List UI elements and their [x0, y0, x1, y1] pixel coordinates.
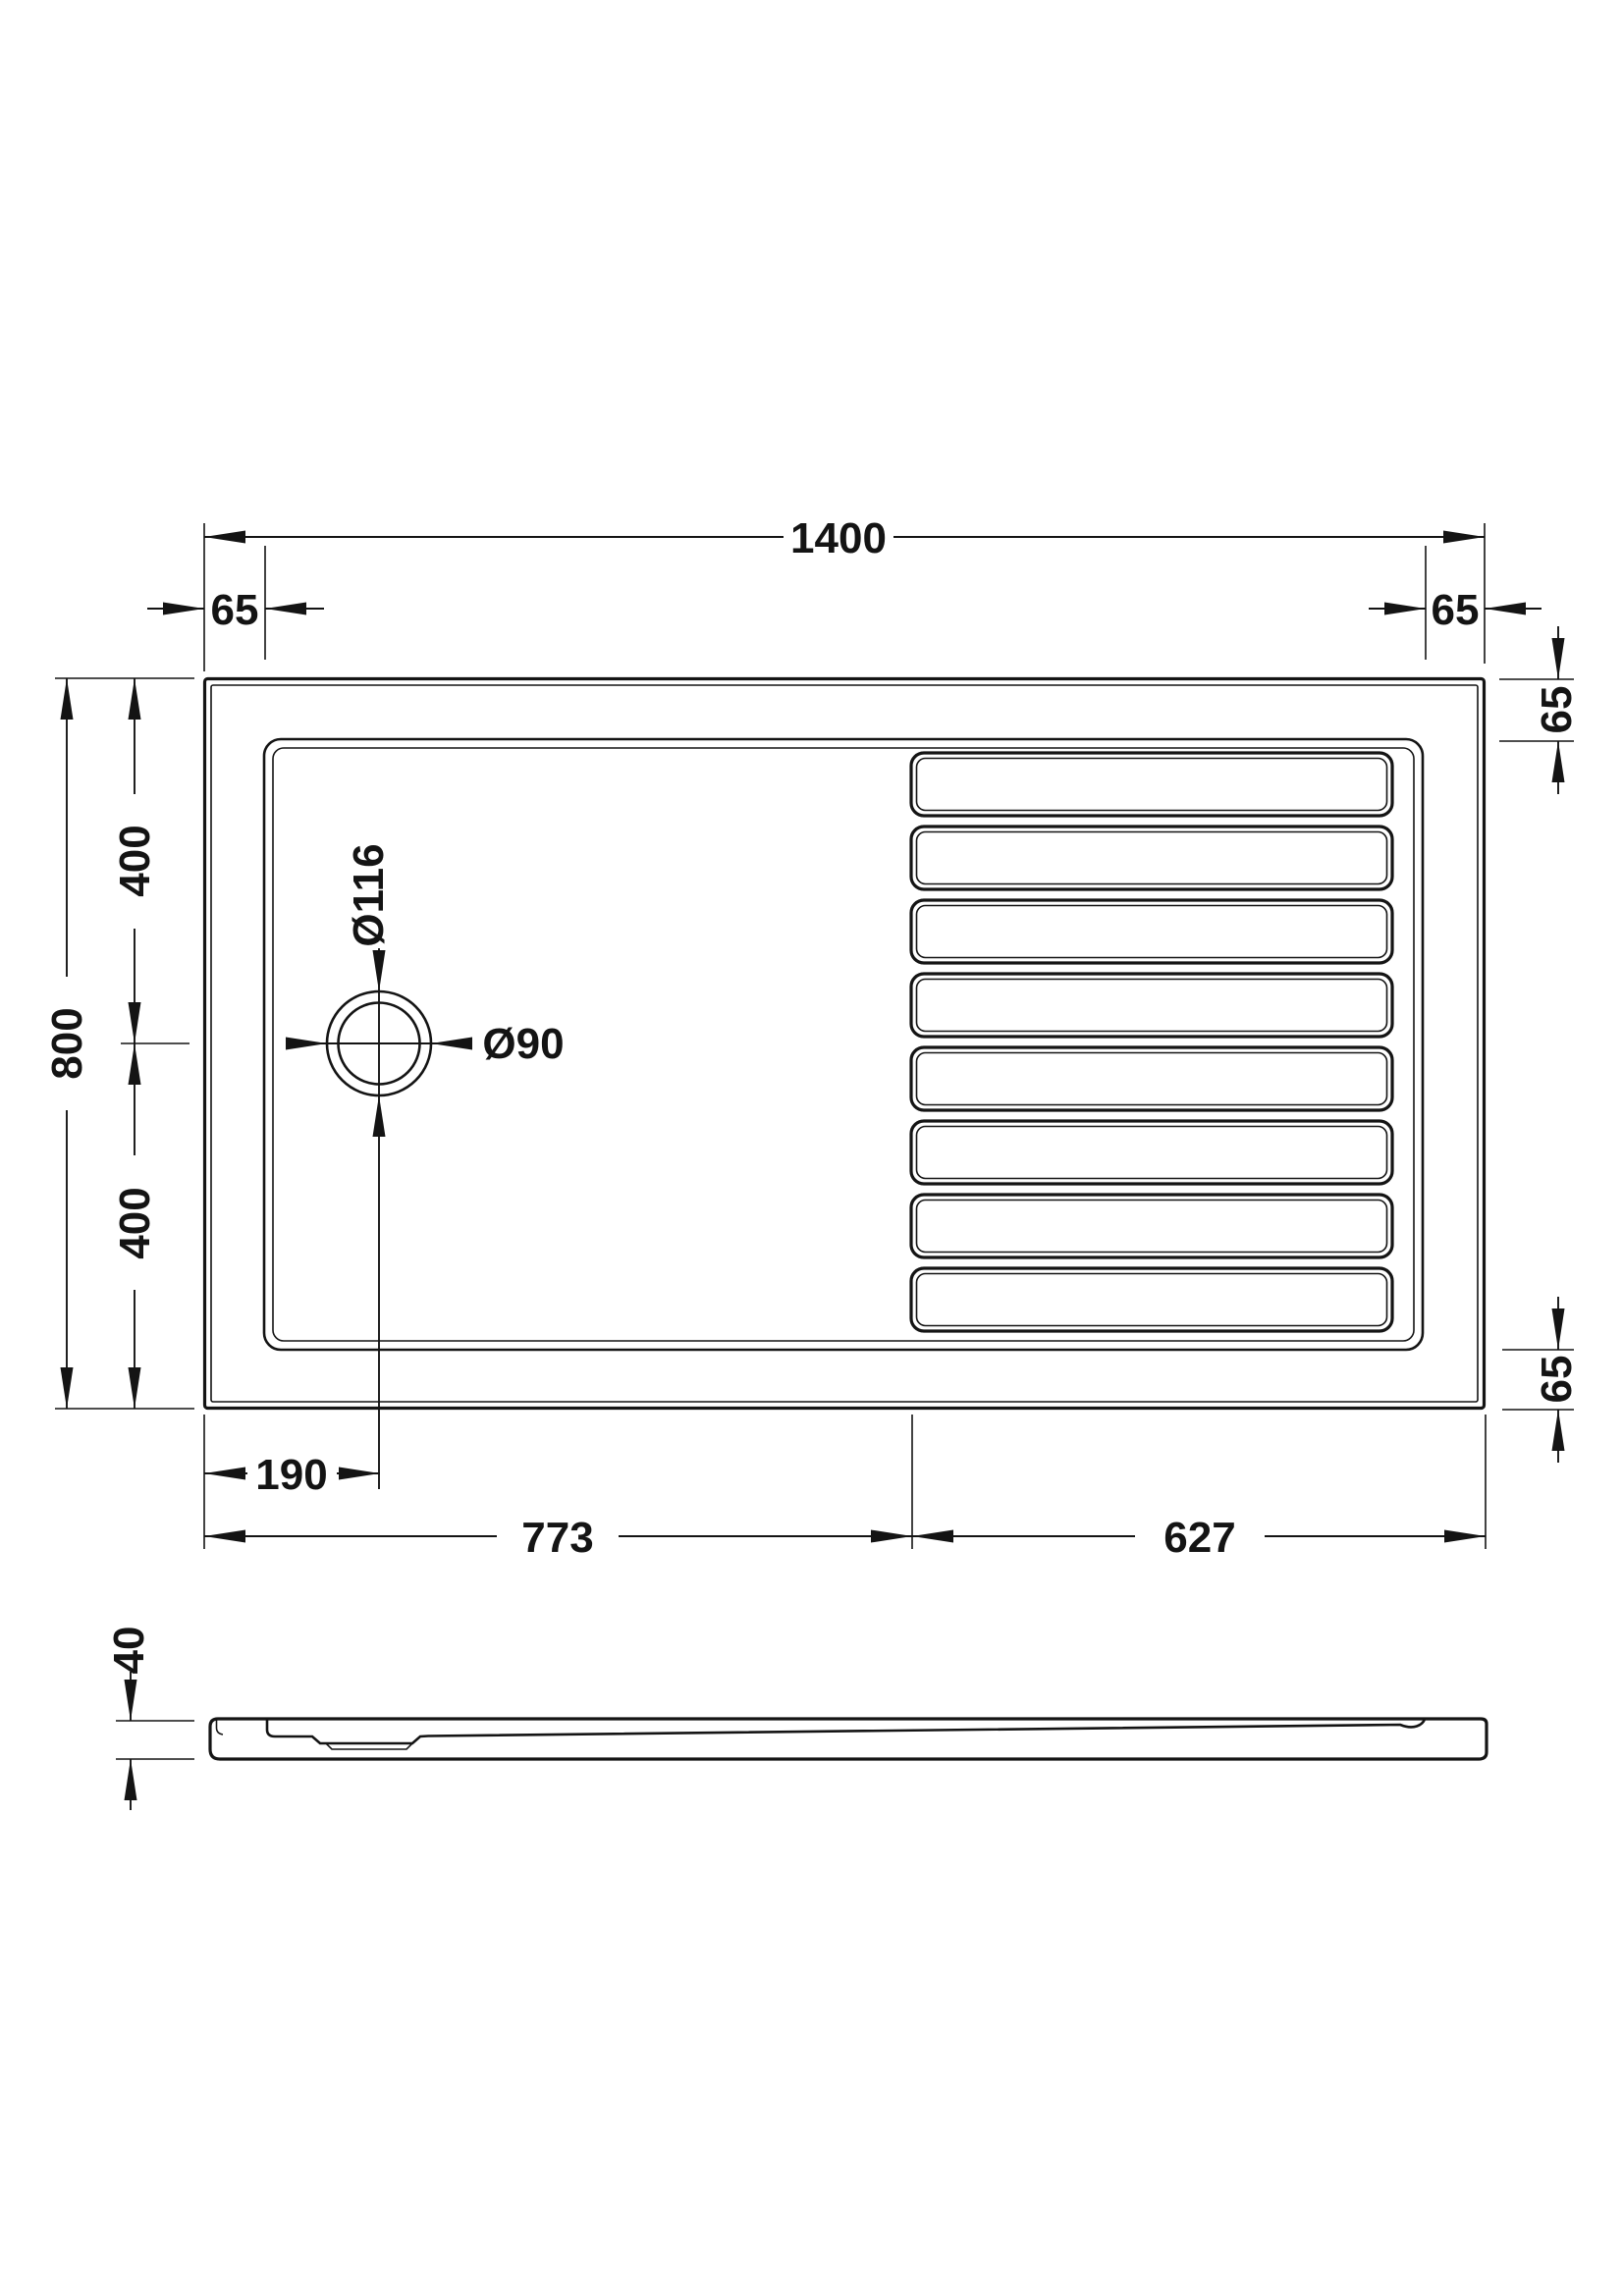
- drain-diameter-label: Ø90: [482, 1020, 564, 1068]
- drain-outer-diameter-label: Ø116: [345, 843, 393, 946]
- depth-lower-label: 400: [111, 1187, 159, 1258]
- arrowhead: [129, 1367, 141, 1409]
- slat: [911, 1195, 1392, 1257]
- tray-height-label: 40: [105, 1627, 153, 1675]
- drawing-svg: Ø116 Ø90 1400 65 65 65: [0, 0, 1623, 2296]
- arrowhead: [1552, 1410, 1565, 1451]
- slat-zone: [911, 753, 1392, 1331]
- drain-offset-label: 190: [255, 1451, 327, 1499]
- arrowhead: [1552, 741, 1565, 782]
- overall-width-label: 1400: [790, 514, 887, 562]
- dimension-drain-offset: 190: [204, 1415, 380, 1549]
- arrowhead: [204, 1468, 245, 1480]
- arrowhead: [125, 1759, 137, 1800]
- drain-waste: Ø116 Ø90: [286, 843, 565, 1489]
- slat: [911, 1121, 1392, 1184]
- arrowhead: [129, 1002, 141, 1043]
- rim-right-upper-label: 65: [1533, 686, 1581, 734]
- side-floor-slope-line: [267, 1720, 1425, 1744]
- rim-right-lower-label: 65: [1533, 1356, 1581, 1404]
- dimension-tray-height: 40: [105, 1627, 194, 1810]
- arrowhead: [61, 1367, 74, 1409]
- dimension-ribbed-zone: 627: [912, 1415, 1486, 1562]
- arrowhead: [265, 603, 306, 615]
- arrowhead: [1552, 638, 1565, 679]
- slat: [911, 974, 1392, 1037]
- depth-upper-label: 400: [111, 825, 159, 896]
- arrowhead: [373, 950, 386, 991]
- slat: [911, 900, 1392, 963]
- slat: [911, 1268, 1392, 1331]
- arrowhead: [125, 1680, 137, 1721]
- arrowhead: [204, 531, 245, 544]
- side-rim-inner-line: [217, 1720, 224, 1735]
- arrowhead: [61, 678, 74, 720]
- arrowhead: [1485, 603, 1526, 615]
- arrowhead: [163, 603, 204, 615]
- plan-view: Ø116 Ø90: [205, 679, 1485, 1490]
- arrowhead: [1384, 603, 1426, 615]
- dimension-rim-top-right: 65: [1369, 546, 1542, 660]
- dimension-rim-top-left: 65: [147, 546, 324, 660]
- dimension-rim-right-upper: 65: [1499, 626, 1581, 794]
- shower-tray-technical-drawing: Ø116 Ø90 1400 65 65 65: [0, 0, 1623, 2296]
- dimension-depth-lower-half: 400: [111, 1043, 159, 1409]
- arrowhead: [129, 1043, 141, 1085]
- dimension-overall-width: 1400: [204, 514, 1485, 671]
- overall-depth-label: 800: [43, 1007, 91, 1079]
- arrowhead: [339, 1468, 380, 1480]
- arrowhead: [1444, 1530, 1486, 1543]
- arrowhead: [1552, 1308, 1565, 1350]
- rim-top-left-label: 65: [211, 586, 259, 634]
- dimension-rim-right-lower: 65: [1502, 1297, 1581, 1463]
- arrowhead: [286, 1038, 327, 1050]
- dimension-overall-depth: 800 400 400: [43, 678, 194, 1409]
- ribbed-zone-label: 627: [1163, 1514, 1235, 1562]
- slat: [911, 1047, 1392, 1110]
- arrowhead: [431, 1038, 472, 1050]
- arrowhead: [129, 678, 141, 720]
- side-view: 40: [105, 1627, 1487, 1810]
- plain-zone-label: 773: [521, 1514, 593, 1562]
- arrowhead: [373, 1095, 386, 1137]
- arrowhead: [204, 1530, 245, 1543]
- arrowhead: [871, 1530, 912, 1543]
- slat: [911, 827, 1392, 889]
- arrowhead: [912, 1530, 953, 1543]
- slat: [911, 753, 1392, 816]
- rim-top-right-label: 65: [1432, 586, 1480, 634]
- arrowhead: [1443, 531, 1485, 544]
- dimension-depth-upper-half: 400: [111, 678, 159, 1043]
